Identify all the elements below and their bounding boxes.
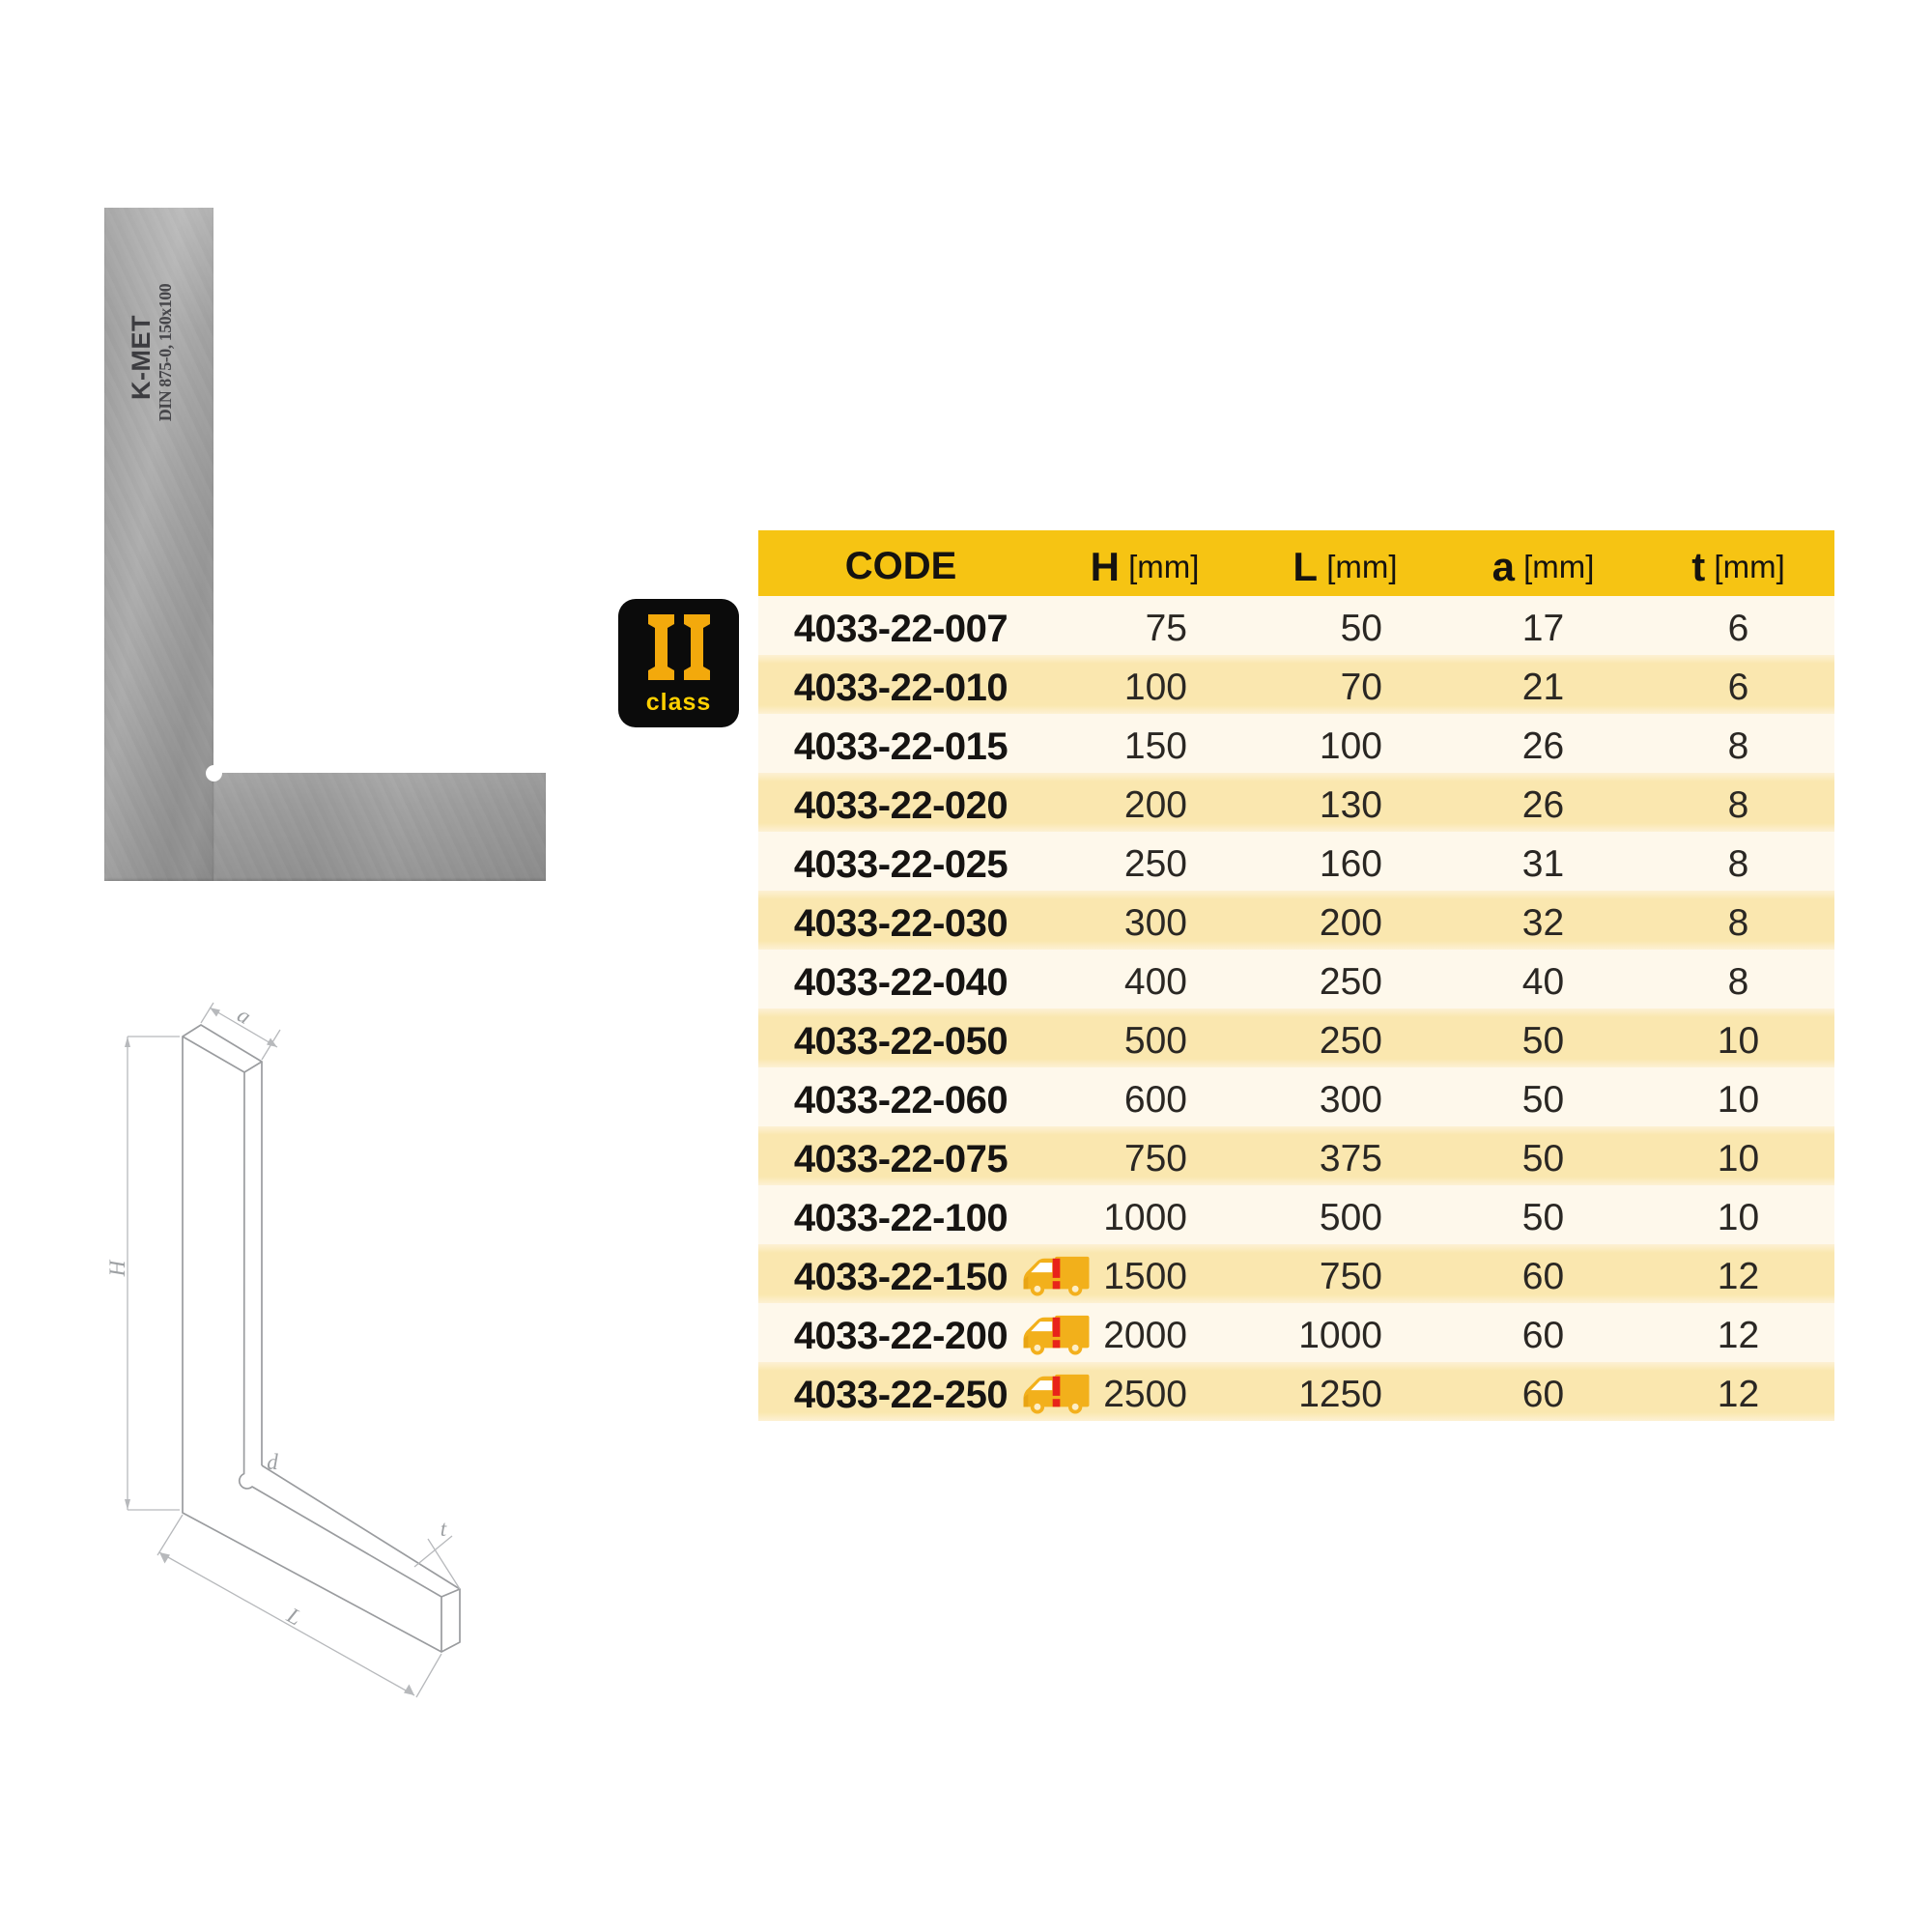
svg-text:t: t [440,1517,447,1541]
svg-text:H: H [105,1259,129,1277]
svg-text:d: d [267,1450,278,1474]
svg-text:L: L [282,1603,305,1631]
svg-text:a: a [234,1003,255,1029]
